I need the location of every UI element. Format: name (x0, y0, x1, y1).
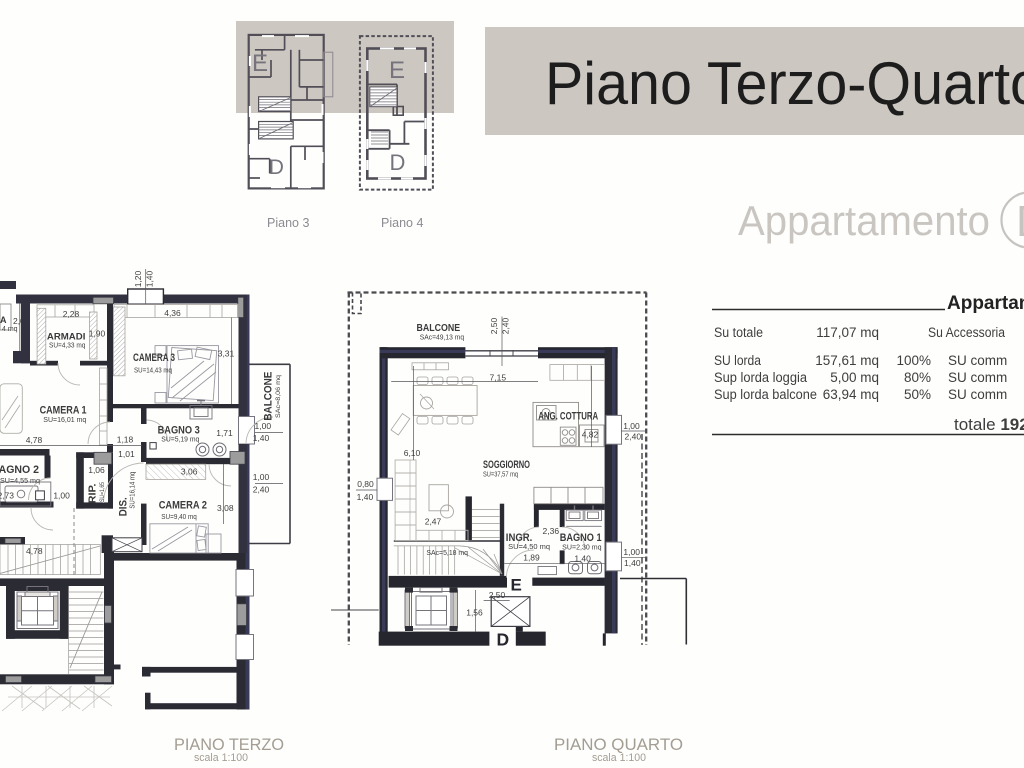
svg-text:SU=5,19 mq: SU=5,19 mq (161, 436, 199, 443)
svg-text:2,40: 2,40 (625, 432, 642, 442)
svg-text:Appartamento: Appartamento (738, 197, 990, 244)
svg-text:Su Accessoria: Su Accessoria (928, 325, 1005, 340)
svg-text:2,40: 2,40 (501, 317, 511, 334)
svg-text:100%: 100% (896, 353, 931, 368)
svg-text:117,07 mq: 117,07 mq (816, 325, 879, 340)
svg-text:1,00: 1,00 (253, 472, 270, 482)
svg-text:ANG. COTTURA: ANG. COTTURA (538, 410, 598, 422)
svg-text:2,47: 2,47 (425, 517, 442, 527)
svg-text:SOGGIORNO: SOGGIORNO (483, 459, 530, 471)
svg-text:RIP.: RIP. (88, 483, 99, 503)
svg-text:CAMERA 3: CAMERA 3 (133, 352, 175, 364)
svg-text:SU=14,43 mq: SU=14,43 mq (134, 368, 172, 375)
svg-text:1,06: 1,06 (88, 465, 105, 475)
svg-text:4,36: 4,36 (164, 308, 181, 318)
svg-text:2,28: 2,28 (63, 309, 80, 319)
svg-text:BAGNO 1: BAGNO 1 (560, 532, 602, 544)
svg-text:Su totale: Su totale (714, 325, 763, 340)
svg-text:INGR.: INGR. (506, 532, 533, 544)
svg-text:1,90: 1,90 (89, 328, 106, 338)
svg-text:SU=16,14 mq: SU=16,14 mq (130, 472, 137, 509)
svg-text:2,50: 2,50 (489, 317, 499, 334)
svg-text:CAMERA 1: CAMERA 1 (40, 405, 87, 417)
svg-text:BALCONE: BALCONE (417, 323, 461, 334)
svg-text:5,00 mq: 5,00 mq (830, 370, 879, 385)
svg-text:A: A (0, 315, 7, 325)
svg-text:E: E (511, 576, 522, 595)
svg-text:80%: 80% (904, 370, 931, 385)
svg-text:scala 1:100: scala 1:100 (194, 752, 248, 764)
svg-text:SU comm: SU comm (948, 387, 1007, 402)
svg-text:50%: 50% (904, 387, 931, 402)
svg-text:SU=4,55 mq: SU=4,55 mq (0, 478, 40, 485)
svg-text:SU=1,65: SU=1,65 (100, 481, 106, 502)
svg-text:SU=2,30 mq: SU=2,30 mq (562, 545, 602, 552)
svg-text:0,80: 0,80 (357, 479, 374, 489)
svg-text:BAGNO 3: BAGNO 3 (158, 425, 200, 437)
svg-text:D: D (269, 156, 284, 179)
svg-text:2,36: 2,36 (543, 526, 560, 536)
svg-text:1,89: 1,89 (523, 553, 540, 563)
svg-text:2,40: 2,40 (253, 484, 270, 494)
svg-text:totale 192,05: totale 192,05 (954, 415, 1024, 434)
svg-text:1,40: 1,40 (253, 433, 270, 443)
svg-text:3,31: 3,31 (218, 349, 235, 359)
svg-text:scala 1:100: scala 1:100 (592, 752, 646, 764)
svg-text:Piano Terzo-Quarto: Piano Terzo-Quarto (545, 50, 1024, 117)
svg-text:2,50: 2,50 (489, 590, 506, 600)
svg-text:1,00: 1,00 (255, 421, 272, 431)
svg-text:Sup lorda balcone: Sup lorda balcone (714, 387, 817, 402)
svg-text:SU lorda: SU lorda (714, 353, 761, 368)
svg-text:1,00: 1,00 (623, 547, 640, 557)
svg-text:1,18: 1,18 (117, 435, 134, 445)
svg-text:157,61 mq: 157,61 mq (815, 353, 879, 368)
svg-text:D: D (390, 150, 406, 175)
svg-text:1,00: 1,00 (53, 490, 70, 500)
svg-text:SAc=5,18 mq: SAc=5,18 mq (426, 550, 468, 557)
svg-text:1,40: 1,40 (574, 554, 591, 564)
svg-text:SAc=8,06 mq: SAc=8,06 mq (275, 375, 282, 418)
svg-text:1,01: 1,01 (118, 449, 135, 459)
svg-text:3,08: 3,08 (217, 503, 234, 513)
svg-text:1,56: 1,56 (466, 608, 483, 618)
svg-text:Appartamento E: Appartamento E (947, 293, 1024, 314)
svg-text:SU=9,40 mq: SU=9,40 mq (161, 514, 197, 521)
svg-text:Piano 4: Piano 4 (381, 216, 423, 230)
svg-text:BAGNO 2: BAGNO 2 (0, 464, 39, 476)
svg-text:63,94 mq: 63,94 mq (823, 387, 879, 402)
svg-text:7,15: 7,15 (490, 372, 507, 382)
svg-text:SU=16,01 mq: SU=16,01 mq (43, 417, 86, 424)
svg-text:1,20: 1,20 (133, 270, 143, 287)
svg-text:CAMERA 2: CAMERA 2 (159, 500, 207, 512)
svg-text:ARMADI: ARMADI (47, 331, 86, 342)
svg-text:DIS.: DIS. (118, 497, 130, 516)
svg-text:1,00: 1,00 (623, 421, 640, 431)
svg-text:1,71: 1,71 (216, 428, 233, 438)
svg-text:1,40: 1,40 (357, 492, 374, 502)
svg-text:SU=4,33 mq: SU=4,33 mq (49, 343, 85, 350)
svg-text:D: D (497, 630, 510, 650)
svg-text:2,73: 2,73 (0, 490, 14, 500)
svg-text:SU=37,57 mq: SU=37,57 mq (483, 471, 518, 478)
svg-text:1,40: 1,40 (624, 558, 641, 568)
svg-text:E: E (252, 50, 268, 77)
svg-text:4,82: 4,82 (582, 430, 599, 440)
svg-text:4,78: 4,78 (26, 546, 43, 556)
svg-text:6,10: 6,10 (404, 448, 421, 458)
svg-text:SU comm: SU comm (948, 370, 1007, 385)
svg-text:3,06: 3,06 (181, 466, 198, 476)
svg-text:4 mq: 4 mq (2, 326, 18, 333)
svg-text:D: D (1016, 197, 1024, 246)
svg-text:4,78: 4,78 (26, 435, 43, 445)
svg-text:SU=4,50 mq: SU=4,50 mq (508, 544, 550, 551)
svg-text:Piano 3: Piano 3 (267, 216, 309, 230)
svg-text:E: E (389, 57, 405, 84)
svg-text:SU comm: SU comm (948, 353, 1007, 368)
svg-text:BALCONE: BALCONE (263, 372, 275, 421)
svg-text:SAc=49,13 mq: SAc=49,13 mq (420, 334, 464, 341)
svg-text:Sup lorda loggia: Sup lorda loggia (714, 370, 807, 385)
